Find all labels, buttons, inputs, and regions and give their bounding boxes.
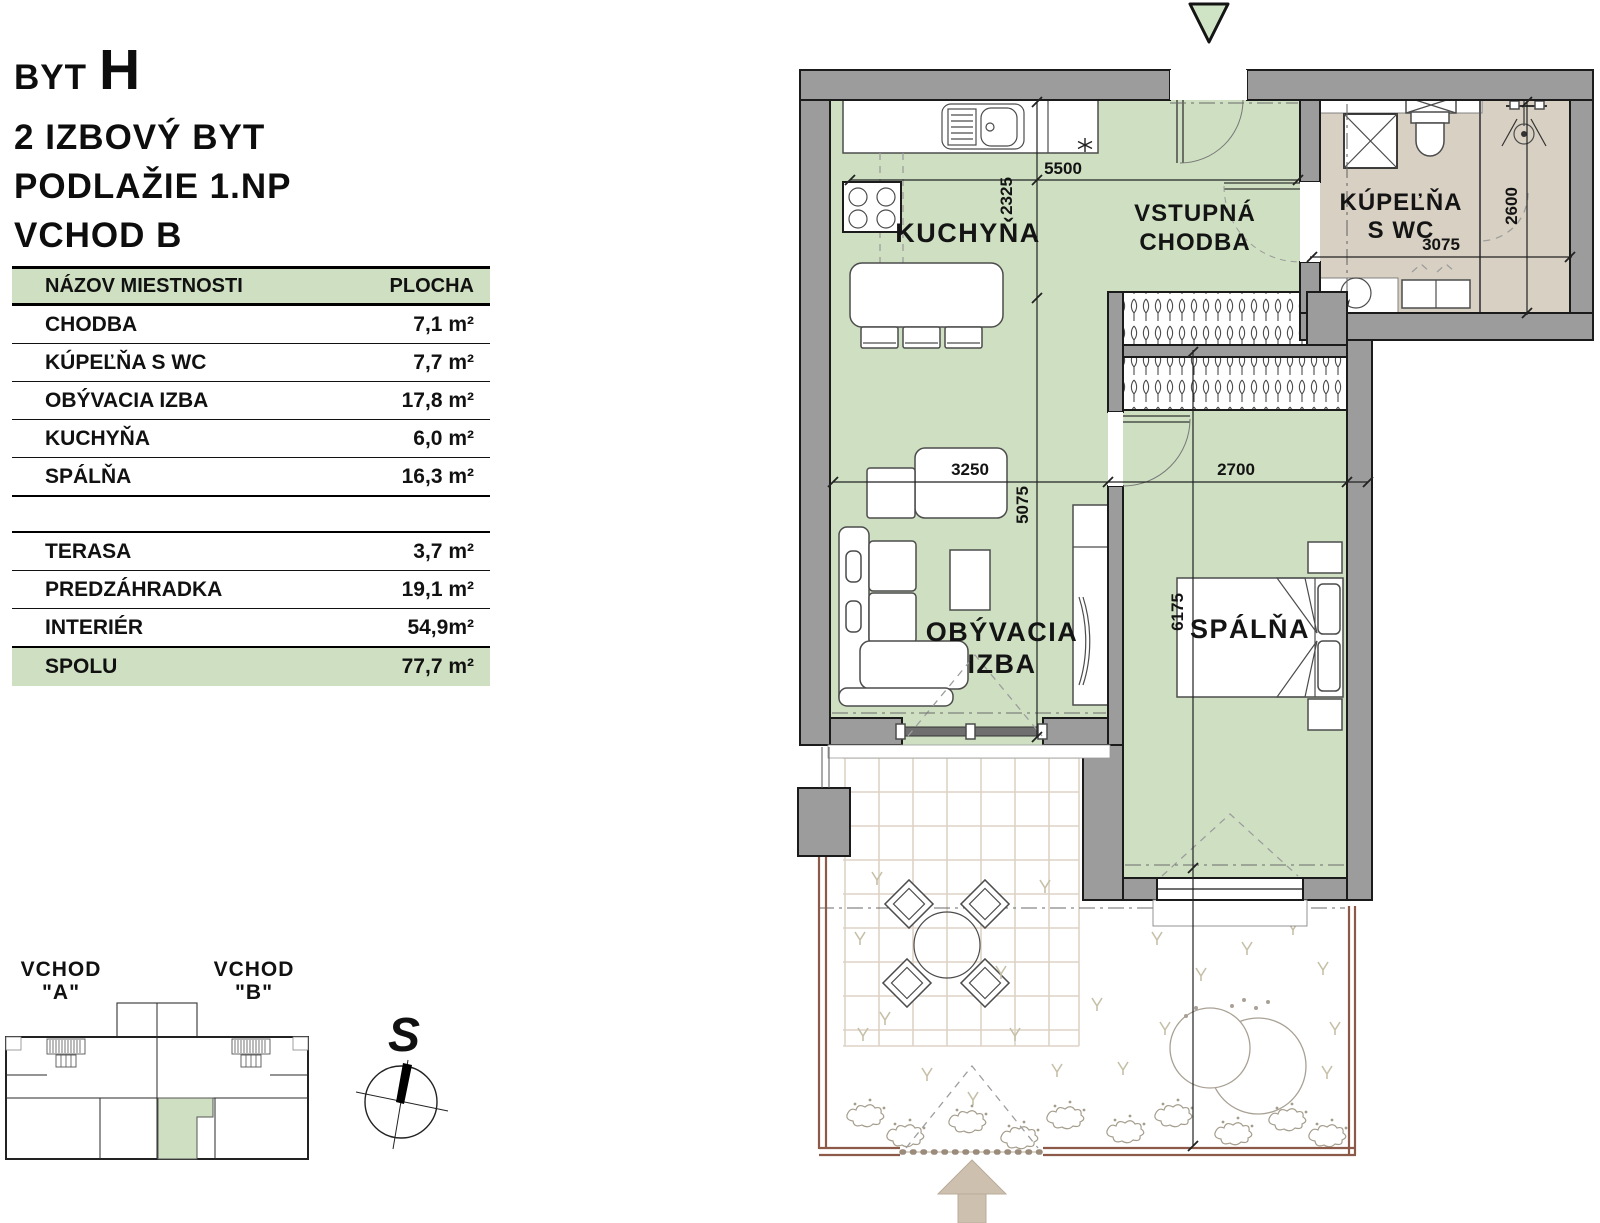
room-area-cell: 3,7 m² bbox=[413, 540, 490, 564]
table-row: KÚPEĽŇA S WC 7,7 m² bbox=[12, 344, 490, 382]
room-name-cell: KÚPEĽŇA S WC bbox=[12, 351, 206, 375]
header-name: NÁZOV MIESTNOSTI bbox=[12, 275, 243, 298]
garden-furniture bbox=[883, 880, 1009, 1007]
apartment-entrance-triangle-icon bbox=[1190, 4, 1228, 42]
dim-bedroom-depth: 6175 bbox=[1168, 593, 1187, 631]
hall-wardrobe bbox=[1122, 292, 1307, 345]
bathroom-label-line2: S WC bbox=[1368, 217, 1435, 244]
desk bbox=[915, 448, 1007, 518]
hall-label-line1: VSTUPNÁ bbox=[1134, 199, 1256, 227]
bedroom-label: SPÁLŇA bbox=[1190, 613, 1310, 644]
nightstand bbox=[1308, 542, 1342, 573]
table-row: TERASA 3,7 m² bbox=[12, 531, 490, 571]
room-name-cell: KUCHYŇA bbox=[12, 427, 150, 451]
table-header: NÁZOV MIESTNOSTI PLOCHA bbox=[12, 266, 490, 306]
dim-living-width: 3250 bbox=[951, 460, 989, 479]
header-area: PLOCHA bbox=[390, 275, 490, 298]
site-entrance-b-quote: "B" bbox=[235, 981, 273, 1004]
hall-label-line2: CHODBA bbox=[1139, 229, 1250, 256]
apartment-title: BYT H bbox=[14, 42, 291, 99]
apartment-letter: H bbox=[99, 42, 141, 99]
bedroom-wardrobe bbox=[1122, 357, 1347, 410]
living-label-line1: OBÝVACIA bbox=[926, 616, 1079, 647]
table-gap bbox=[12, 497, 490, 531]
site-entrance-a-label: VCHOD bbox=[21, 958, 102, 981]
apartment-floorplan-sheet: 5500 2325 5075 3250 2700 6175 3075 2600 … bbox=[0, 0, 1600, 1223]
terrace-tile-grid bbox=[843, 758, 1079, 1046]
room-area-cell: 16,3 m² bbox=[402, 465, 490, 489]
stove-icon bbox=[843, 182, 901, 232]
room-name-cell: TERASA bbox=[12, 540, 131, 564]
bedroom-door-gap bbox=[1108, 412, 1123, 486]
room-area-cell: 19,1 m² bbox=[402, 578, 490, 602]
kitchen-label: KUCHYŇA bbox=[895, 217, 1041, 248]
dim-kitchen-width: 5500 bbox=[1044, 159, 1082, 178]
table-row: SPÁLŇA 16,3 m² bbox=[12, 458, 490, 497]
table-row: PREDZÁHRADKA 19,1 m² bbox=[12, 571, 490, 609]
room-name-cell: INTERIÉR bbox=[12, 616, 143, 640]
room-name-cell: CHODBA bbox=[12, 313, 137, 337]
table-total-row: SPOLU 77,7 m² bbox=[12, 648, 490, 686]
garden-entrance-arrow-icon bbox=[938, 1160, 1006, 1223]
room-name-cell: OBÝVACIA IZBA bbox=[12, 389, 208, 413]
apartment-floor: PODLAŽIE 1.NP bbox=[14, 162, 291, 211]
dim-living-height: 5075 bbox=[1013, 486, 1032, 524]
apartment-label: BYT bbox=[14, 58, 87, 98]
dim-kitchen-depth: 2325 bbox=[997, 177, 1016, 215]
room-area-cell: 7,7 m² bbox=[413, 351, 490, 375]
compass-needle bbox=[396, 1063, 412, 1104]
kitchen-island bbox=[850, 263, 1003, 327]
room-area-cell: 17,8 m² bbox=[402, 389, 490, 413]
tv-stand bbox=[1073, 505, 1108, 705]
site-entrance-b-label: VCHOD bbox=[214, 958, 295, 981]
room-area-cell: 54,9m² bbox=[407, 616, 490, 640]
site-entrance-a-quote: "A" bbox=[42, 981, 80, 1004]
area-table: NÁZOV MIESTNOSTI PLOCHA CHODBA 7,1 m² KÚ… bbox=[12, 266, 490, 686]
armchair bbox=[867, 468, 915, 518]
washing-machine-icon bbox=[1344, 114, 1397, 168]
bar-stools bbox=[861, 327, 982, 348]
living-label-line2: IZBA bbox=[968, 649, 1037, 679]
site-plan: VCHOD "A" VCHOD "B" bbox=[6, 958, 308, 1159]
bathroom-door-gap bbox=[1300, 182, 1320, 262]
table-row: KUCHYŇA 6,0 m² bbox=[12, 420, 490, 458]
room-area-cell: 6,0 m² bbox=[413, 427, 490, 451]
title-block: BYT H 2 IZBOVÝ BYT PODLAŽIE 1.NP VCHOD B bbox=[14, 42, 291, 260]
compass-south-letter: S bbox=[388, 1009, 420, 1062]
north-compass: S bbox=[356, 1009, 448, 1149]
room-name-cell: PREDZÁHRADKA bbox=[12, 578, 222, 602]
table-row: CHODBA 7,1 m² bbox=[12, 306, 490, 344]
apartment-type: 2 IZBOVÝ BYT bbox=[14, 113, 291, 162]
apartment-entrance: VCHOD B bbox=[14, 211, 291, 260]
room-name-cell: SPÁLŇA bbox=[12, 465, 131, 489]
bathroom-label-line1: KÚPEĽŇA bbox=[1339, 188, 1462, 216]
table-row: OBÝVACIA IZBA 17,8 m² bbox=[12, 382, 490, 420]
pillow bbox=[1318, 584, 1340, 634]
total-name-cell: SPOLU bbox=[12, 655, 117, 679]
table-row: INTERIÉR 54,9m² bbox=[12, 609, 490, 648]
room-area-cell: 7,1 m² bbox=[413, 313, 490, 337]
coffee-table bbox=[950, 550, 990, 610]
pillow bbox=[1318, 641, 1340, 691]
garden-bushes bbox=[1170, 998, 1306, 1114]
nightstand bbox=[1308, 699, 1342, 730]
entrance-gap bbox=[1170, 70, 1247, 100]
dim-bath-depth: 2600 bbox=[1502, 187, 1521, 225]
dim-bedroom-width: 2700 bbox=[1217, 460, 1255, 479]
total-area-cell: 77,7 m² bbox=[402, 655, 490, 679]
